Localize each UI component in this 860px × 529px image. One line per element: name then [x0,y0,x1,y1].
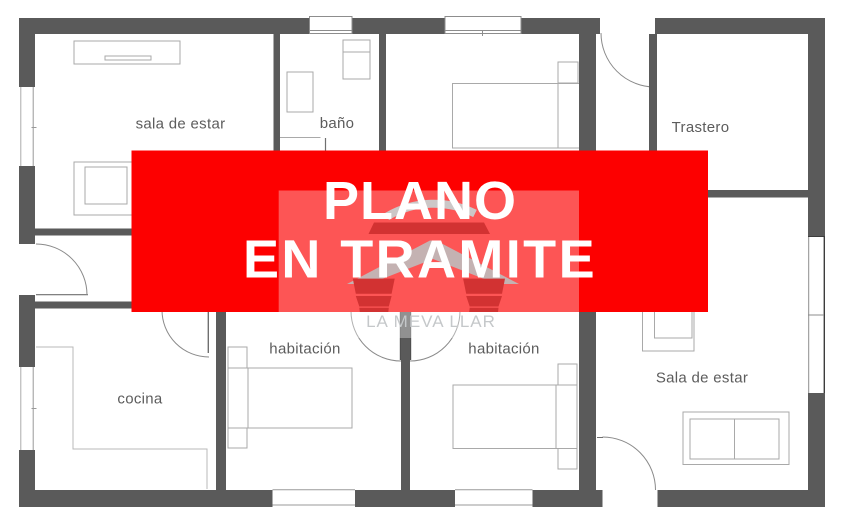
svg-text:LA MEVA LLAR: LA MEVA LLAR [366,312,496,331]
svg-text:PLANO: PLANO [323,171,517,231]
svg-text:habitación: habitación [468,341,539,358]
svg-text:baño: baño [320,115,355,132]
svg-text:habitación: habitación [269,341,340,358]
svg-text:sala de estar: sala de estar [136,116,226,133]
svg-text:EN TRAMITE: EN TRAMITE [243,230,597,290]
svg-text:cocina: cocina [117,391,163,408]
svg-text:Trastero: Trastero [672,119,730,136]
svg-text:Sala de estar: Sala de estar [656,370,748,387]
